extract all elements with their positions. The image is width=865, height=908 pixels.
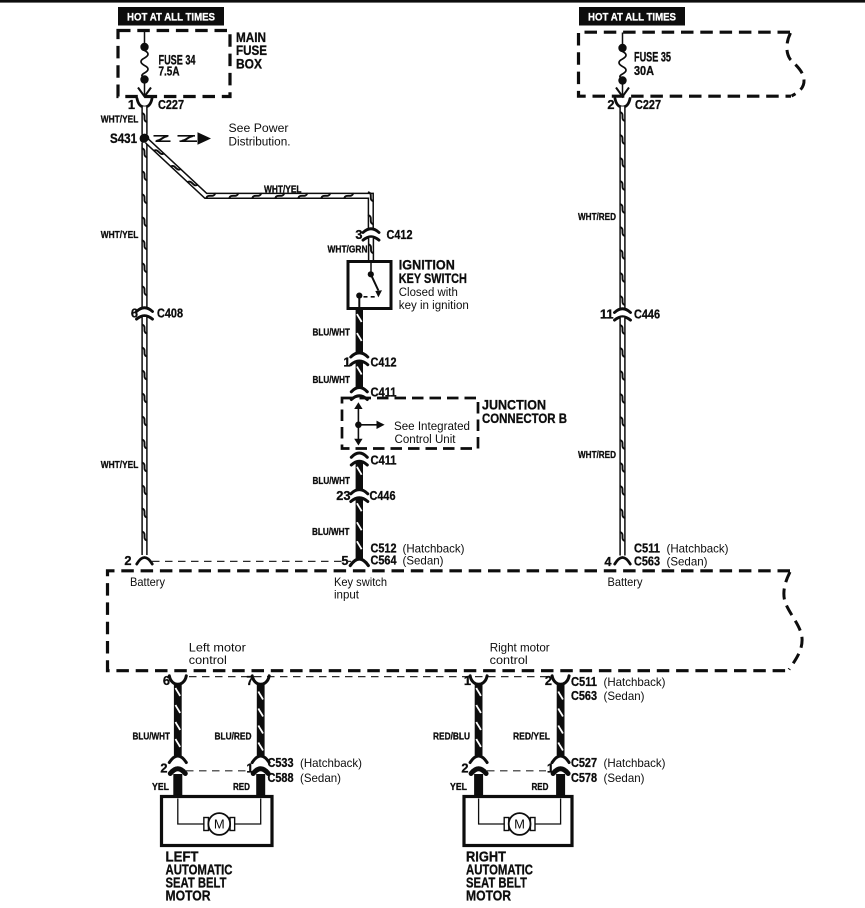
svg-text:(Sedan): (Sedan) xyxy=(667,554,708,568)
svg-text:C511: C511 xyxy=(571,674,597,689)
svg-text:C411: C411 xyxy=(371,452,397,467)
svg-text:1: 1 xyxy=(343,354,350,369)
svg-text:key in ignition: key in ignition xyxy=(399,298,469,312)
svg-text:(Hatchback): (Hatchback) xyxy=(604,756,666,770)
svg-text:Distribution.: Distribution. xyxy=(229,134,291,148)
svg-text:FUSE 35: FUSE 35 xyxy=(634,50,671,65)
svg-text:YEL: YEL xyxy=(152,782,169,793)
svg-text:Closed with: Closed with xyxy=(399,285,458,299)
svg-text:WHT/YEL: WHT/YEL xyxy=(101,230,139,241)
svg-text:3: 3 xyxy=(355,227,362,242)
svg-text:6: 6 xyxy=(163,673,170,688)
svg-text:control: control xyxy=(490,653,528,667)
svg-text:6: 6 xyxy=(131,305,138,320)
svg-text:RED/BLU: RED/BLU xyxy=(433,731,470,742)
svg-text:WHT/GRN: WHT/GRN xyxy=(328,244,368,255)
svg-text:M: M xyxy=(214,817,225,832)
svg-text:7.5A: 7.5A xyxy=(159,65,180,79)
svg-text:S431: S431 xyxy=(110,131,137,146)
svg-text:HOT AT ALL TIMES: HOT AT ALL TIMES xyxy=(127,11,215,23)
svg-text:See Integrated: See Integrated xyxy=(394,419,470,433)
svg-text:4: 4 xyxy=(604,554,612,569)
svg-text:C527: C527 xyxy=(571,755,597,770)
svg-text:BLU/WHT: BLU/WHT xyxy=(313,476,351,487)
svg-text:(Sedan): (Sedan) xyxy=(604,689,645,703)
svg-text:C533: C533 xyxy=(268,755,294,770)
svg-text:2: 2 xyxy=(124,553,131,568)
svg-text:control: control xyxy=(189,653,227,667)
svg-text:C227: C227 xyxy=(158,97,184,112)
svg-text:1: 1 xyxy=(547,760,554,775)
svg-text:Battery: Battery xyxy=(608,575,643,589)
svg-text:WHT/YEL: WHT/YEL xyxy=(101,460,139,471)
svg-text:Control Unit: Control Unit xyxy=(395,432,457,446)
svg-text:C408: C408 xyxy=(157,305,183,320)
svg-text:2: 2 xyxy=(607,97,614,112)
svg-text:(Sedan): (Sedan) xyxy=(403,554,444,568)
svg-text:M: M xyxy=(514,817,525,832)
svg-text:BLU/WHT: BLU/WHT xyxy=(313,327,351,338)
svg-text:RED: RED xyxy=(233,782,250,793)
svg-text:WHT/RED: WHT/RED xyxy=(578,212,616,223)
svg-text:2: 2 xyxy=(461,760,468,775)
svg-text:MOTOR: MOTOR xyxy=(466,888,511,904)
svg-text:Battery: Battery xyxy=(130,575,165,589)
svg-text:(Hatchback): (Hatchback) xyxy=(300,756,362,770)
svg-text:MOTOR: MOTOR xyxy=(166,888,211,904)
svg-text:23: 23 xyxy=(336,488,350,503)
svg-text:BLU/WHT: BLU/WHT xyxy=(133,731,171,742)
svg-text:BLU/WHT: BLU/WHT xyxy=(312,527,350,538)
svg-text:C446: C446 xyxy=(370,488,396,503)
svg-text:C563: C563 xyxy=(634,553,660,568)
svg-text:(Sedan): (Sedan) xyxy=(604,771,645,785)
svg-text:5: 5 xyxy=(341,553,348,568)
svg-text:1: 1 xyxy=(246,760,253,775)
svg-text:1: 1 xyxy=(464,673,471,688)
svg-text:(Sedan): (Sedan) xyxy=(300,771,341,785)
svg-text:BOX: BOX xyxy=(236,57,262,72)
svg-text:WHT/RED: WHT/RED xyxy=(578,450,616,461)
svg-text:C227: C227 xyxy=(635,97,661,112)
svg-text:1: 1 xyxy=(128,97,135,112)
svg-text:30A: 30A xyxy=(634,64,654,78)
svg-text:WHT/YEL: WHT/YEL xyxy=(264,185,302,196)
svg-text:11: 11 xyxy=(600,307,614,322)
svg-text:7: 7 xyxy=(246,673,253,688)
svg-text:RED/YEL: RED/YEL xyxy=(513,731,550,742)
svg-text:YEL: YEL xyxy=(450,782,467,793)
svg-text:C564: C564 xyxy=(371,553,398,568)
svg-text:KEY SWITCH: KEY SWITCH xyxy=(399,271,467,286)
svg-text:(Hatchback): (Hatchback) xyxy=(604,675,666,689)
svg-text:C563: C563 xyxy=(571,688,597,703)
svg-text:C412: C412 xyxy=(387,227,413,242)
svg-text:2: 2 xyxy=(545,673,552,688)
svg-text:C446: C446 xyxy=(634,307,660,322)
svg-text:CONNECTOR B: CONNECTOR B xyxy=(482,411,567,426)
svg-text:C588: C588 xyxy=(268,770,294,785)
svg-text:HOT AT ALL TIMES: HOT AT ALL TIMES xyxy=(588,11,676,23)
svg-text:RED: RED xyxy=(532,782,549,793)
svg-text:input: input xyxy=(334,587,360,601)
svg-text:C412: C412 xyxy=(371,354,397,369)
svg-text:BLU/WHT: BLU/WHT xyxy=(313,375,351,386)
svg-text:C578: C578 xyxy=(571,770,597,785)
svg-text:2: 2 xyxy=(160,760,167,775)
svg-text:BLU/RED: BLU/RED xyxy=(215,731,252,742)
svg-text:(Hatchback): (Hatchback) xyxy=(667,541,729,555)
svg-text:WHT/YEL: WHT/YEL xyxy=(101,115,139,126)
svg-text:See Power: See Power xyxy=(229,121,289,135)
